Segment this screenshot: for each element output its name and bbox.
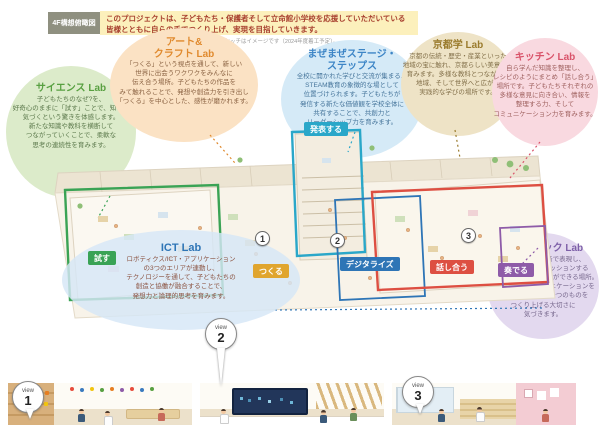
person-figure [438, 409, 446, 422]
plan-marker-3: 3 [461, 228, 476, 243]
floor-tag: 4F構想俯瞰図 [48, 12, 100, 34]
zone-chip-happyo: 発表する [304, 122, 348, 136]
view-2-balloon: view 2 [205, 318, 237, 350]
zone-chip-digitize: デジタライズ [340, 257, 400, 271]
wall-frames [524, 389, 533, 398]
person-figure [158, 408, 166, 421]
view-1-number: 1 [24, 394, 31, 407]
screen-graphics [240, 397, 243, 400]
zone-chip-hanashiau: 話し合う [430, 260, 474, 274]
view-2-illustration [200, 383, 384, 425]
view-3-number: 3 [414, 389, 421, 402]
digital-screen [232, 388, 308, 415]
plan-marker-1: 1 [255, 231, 270, 246]
person-figure [220, 409, 228, 424]
person-figure [320, 410, 328, 423]
plan-marker-2: 2 [330, 233, 345, 248]
view-3-balloon-tail [416, 404, 424, 414]
zone-chip-tsukuru: つくる [253, 264, 289, 278]
person-figure [104, 411, 112, 425]
poster: 4F構想俯瞰図 このプロジェクトは、子どもたち・保護者そして立命館小学校を応援し… [0, 0, 600, 425]
garland-decoration [70, 387, 74, 391]
zone-chip-tamesu: 試す [88, 251, 116, 265]
art-craft-lab-title: アート& [110, 37, 258, 49]
view-2-balloon-tail [217, 348, 225, 386]
person-figure [350, 408, 358, 421]
view-1-balloon-tail [26, 409, 34, 419]
person-figure [476, 407, 484, 422]
kitchen-lab-title: キッチン Lab [492, 52, 598, 64]
zone-chip-kanaderu: 奏でる [498, 263, 534, 277]
wood-slat-ceiling [316, 383, 382, 409]
person-figure [542, 409, 550, 422]
view-2-number: 2 [217, 331, 224, 344]
person-figure [78, 409, 86, 422]
intro-line-1: このプロジェクトは、子どもたち・保護者そして立命館小学校を応援していただいている [106, 14, 412, 25]
kyotogaku-lab-title: 京都学 Lab [401, 40, 515, 52]
craft-table [126, 409, 180, 419]
intro-message: このプロジェクトは、子どもたち・保護者そして立命館小学校を応援していただいている… [100, 11, 418, 35]
